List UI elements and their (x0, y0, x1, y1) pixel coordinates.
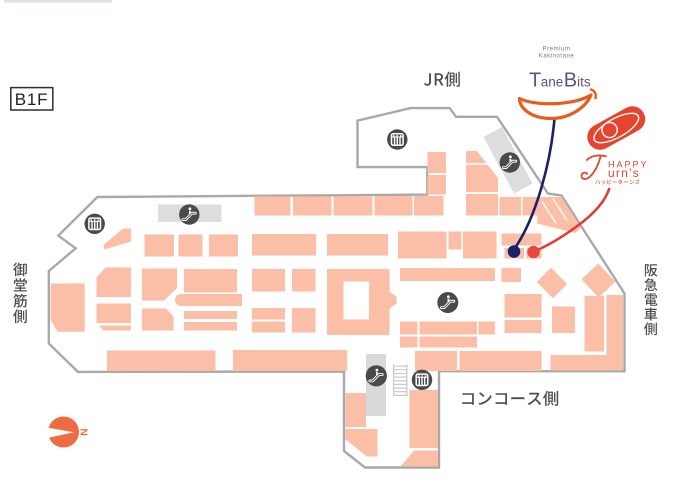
svg-text:Kakinotane: Kakinotane (539, 53, 575, 60)
svg-text:N: N (78, 428, 90, 436)
svg-text:B1F: B1F (15, 90, 49, 109)
svg-text:Premium: Premium (543, 45, 571, 52)
svg-text:TaneBits: TaneBits (529, 69, 591, 91)
svg-text:urn’s: urn’s (608, 166, 640, 180)
